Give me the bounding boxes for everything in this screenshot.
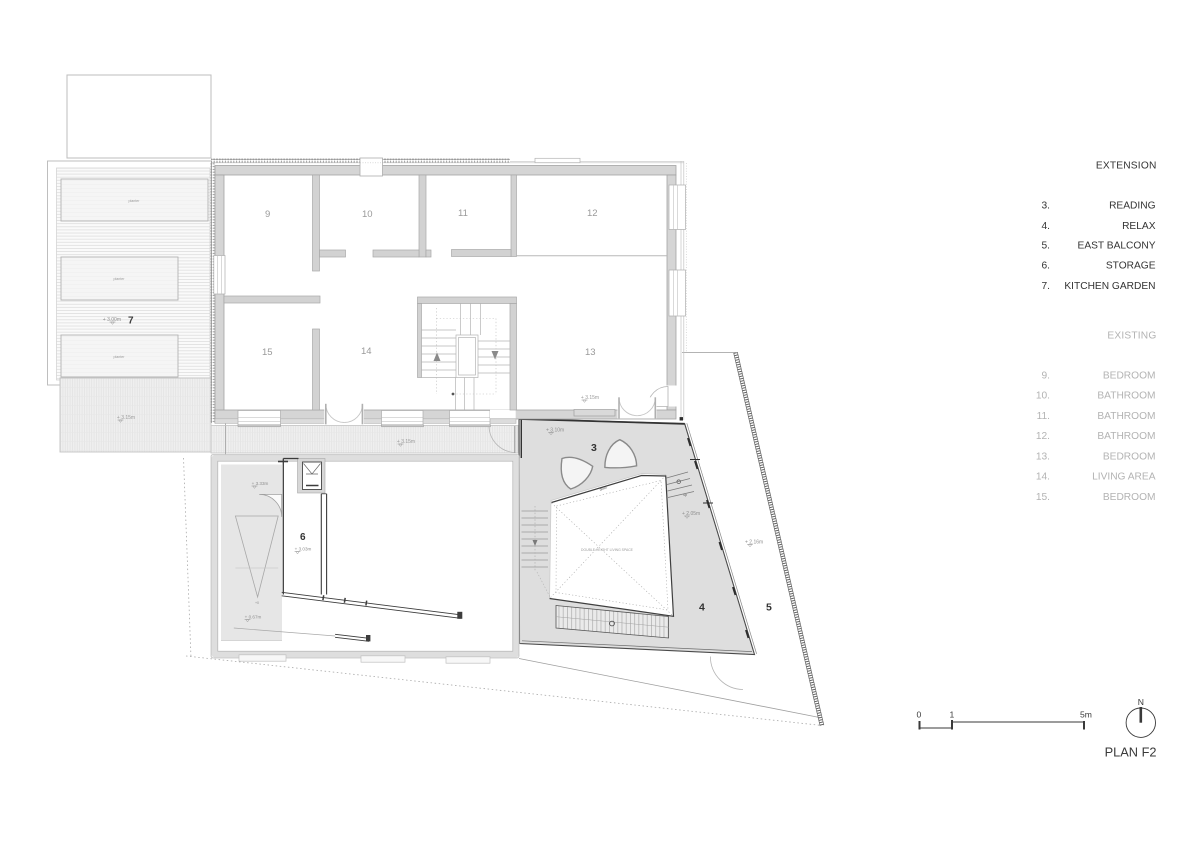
svg-text:11.: 11. bbox=[1037, 411, 1050, 422]
svg-text:3: 3 bbox=[591, 442, 597, 454]
svg-text:4.: 4. bbox=[1042, 221, 1051, 232]
svg-text:EAST BALCONY: EAST BALCONY bbox=[1078, 241, 1156, 252]
svg-text:+ 3.03m: + 3.03m bbox=[295, 547, 312, 552]
svg-text:up: up bbox=[684, 493, 688, 497]
svg-text:6: 6 bbox=[300, 532, 306, 543]
svg-text:3.: 3. bbox=[1042, 201, 1051, 212]
svg-text:11: 11 bbox=[458, 208, 468, 219]
svg-text:+0: +0 bbox=[255, 601, 259, 605]
svg-text:4: 4 bbox=[699, 602, 705, 614]
svg-text:13.: 13. bbox=[1036, 451, 1050, 462]
svg-text:5: 5 bbox=[766, 602, 772, 614]
svg-text:1: 1 bbox=[950, 710, 955, 720]
svg-text:BATHROOM: BATHROOM bbox=[1097, 431, 1155, 442]
svg-text:BEDROOM: BEDROOM bbox=[1103, 451, 1156, 462]
svg-text:READING: READING bbox=[1109, 201, 1155, 212]
svg-text:BEDROOM: BEDROOM bbox=[1103, 370, 1156, 381]
svg-text:BEDROOM: BEDROOM bbox=[1103, 492, 1156, 503]
svg-text:RELAX: RELAX bbox=[1122, 221, 1156, 232]
svg-text:5m: 5m bbox=[1080, 710, 1092, 720]
svg-text:0: 0 bbox=[917, 710, 922, 720]
svg-text:9: 9 bbox=[265, 209, 270, 220]
svg-text:EXTENSION: EXTENSION bbox=[1096, 160, 1157, 171]
svg-text:LIVING AREA: LIVING AREA bbox=[1092, 472, 1156, 483]
svg-text:EXISTING: EXISTING bbox=[1107, 331, 1156, 342]
svg-text:PLAN F2: PLAN F2 bbox=[1105, 745, 1157, 760]
svg-text:planter: planter bbox=[129, 199, 141, 203]
svg-text:+ 3.33m: + 3.33m bbox=[252, 481, 269, 486]
svg-text:planter: planter bbox=[114, 277, 126, 281]
svg-text:15: 15 bbox=[262, 347, 273, 358]
svg-text:12.: 12. bbox=[1036, 431, 1050, 442]
svg-text:BATHROOM: BATHROOM bbox=[1097, 411, 1155, 422]
svg-text:5.: 5. bbox=[1042, 241, 1051, 252]
svg-text:14: 14 bbox=[361, 346, 372, 357]
svg-text:9.: 9. bbox=[1042, 370, 1051, 381]
svg-text:KITCHEN GARDEN: KITCHEN GARDEN bbox=[1064, 281, 1155, 292]
svg-text:10: 10 bbox=[362, 209, 373, 220]
svg-text:planter: planter bbox=[114, 355, 126, 359]
svg-text:STORAGE: STORAGE bbox=[1106, 261, 1156, 272]
svg-text:N: N bbox=[1138, 697, 1144, 707]
svg-text:+ 0.67m: + 0.67m bbox=[245, 615, 262, 620]
svg-text:BATHROOM: BATHROOM bbox=[1097, 391, 1155, 402]
svg-text:10.: 10. bbox=[1036, 391, 1050, 402]
svg-text:13: 13 bbox=[585, 347, 596, 358]
svg-text:14.: 14. bbox=[1036, 472, 1050, 483]
svg-text:15.: 15. bbox=[1036, 492, 1050, 503]
svg-text:7.: 7. bbox=[1042, 281, 1051, 292]
svg-text:6.: 6. bbox=[1042, 261, 1051, 272]
svg-text:DOUBLE HEIGHT LIVING SPACE: DOUBLE HEIGHT LIVING SPACE bbox=[581, 548, 634, 552]
svg-text:12: 12 bbox=[587, 208, 598, 219]
svg-text:7: 7 bbox=[128, 316, 134, 327]
